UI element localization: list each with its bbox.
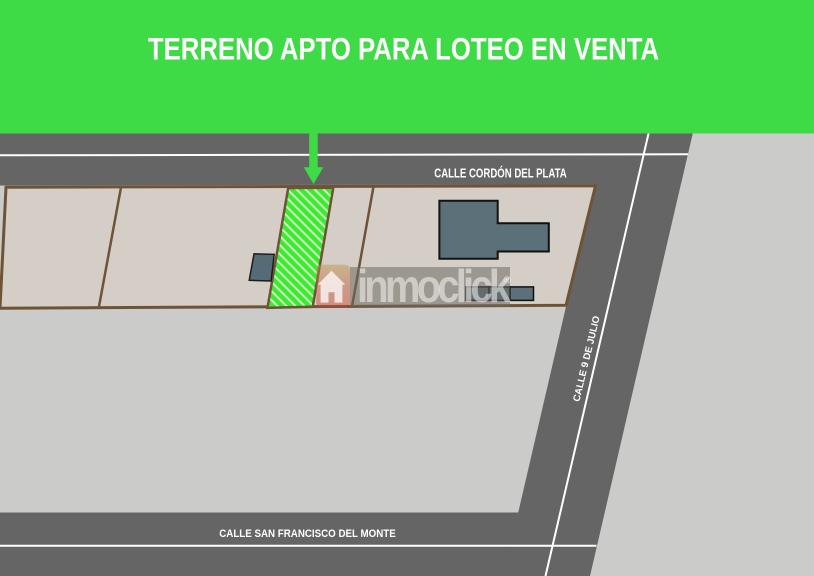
svg-text:CALLE CORDÓN DEL PLATA: CALLE CORDÓN DEL PLATA [434,166,566,181]
svg-text:TERRENO APTO PARA LOTEO EN VEN: TERRENO APTO PARA LOTEO EN VENTA [148,32,659,67]
svg-text:CALLE SAN FRANCISCO DEL MONTE: CALLE SAN FRANCISCO DEL MONTE [219,527,396,540]
svg-text:inmoclick: inmoclick [357,261,512,313]
svg-text:®: ® [504,274,512,286]
